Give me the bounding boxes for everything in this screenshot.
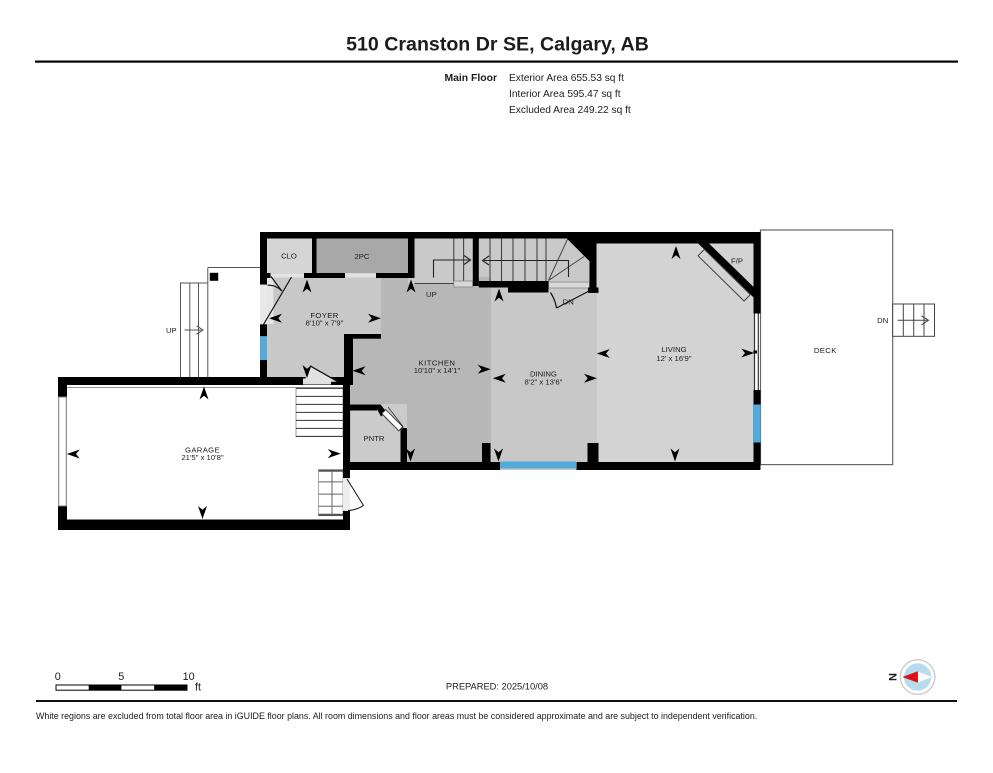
svg-text:Interior Area 595.47 sq ft: Interior Area 595.47 sq ft [509,89,621,100]
svg-text:10'10" x 14'1": 10'10" x 14'1" [414,366,461,375]
svg-text:PREPARED: 2025/10/08: PREPARED: 2025/10/08 [446,681,548,691]
svg-text:Excluded Area 249.22 sq ft: Excluded Area 249.22 sq ft [509,105,631,116]
svg-text:5: 5 [118,671,124,683]
svg-text:DECK: DECK [814,346,837,355]
svg-text:DN: DN [877,316,888,325]
svg-text:12' x 16'9": 12' x 16'9" [656,354,691,363]
svg-text:N: N [887,673,899,681]
svg-text:UP: UP [426,290,437,299]
svg-text:10: 10 [183,671,195,683]
svg-text:Main Floor: Main Floor [444,73,497,84]
svg-text:White regions are excluded fro: White regions are excluded from total fl… [36,711,757,721]
svg-text:ft: ft [195,681,201,693]
svg-text:PNTR: PNTR [364,434,385,443]
svg-text:UP: UP [166,326,177,335]
svg-text:LIVING: LIVING [661,345,686,354]
svg-text:F/P: F/P [731,257,743,266]
svg-text:2PC: 2PC [355,252,370,261]
svg-text:0: 0 [55,671,61,683]
svg-text:8'10" x 7'9": 8'10" x 7'9" [306,319,344,328]
svg-text:21'5" x 10'8": 21'5" x 10'8" [181,453,223,462]
svg-text:510 Cranston Dr SE, Calgary, A: 510 Cranston Dr SE, Calgary, AB [346,33,649,55]
svg-text:8'2" x 13'6": 8'2" x 13'6" [524,377,562,386]
svg-text:Exterior Area 655.53 sq ft: Exterior Area 655.53 sq ft [509,73,624,84]
svg-text:CLO: CLO [281,251,297,260]
svg-text:DN: DN [563,298,574,307]
